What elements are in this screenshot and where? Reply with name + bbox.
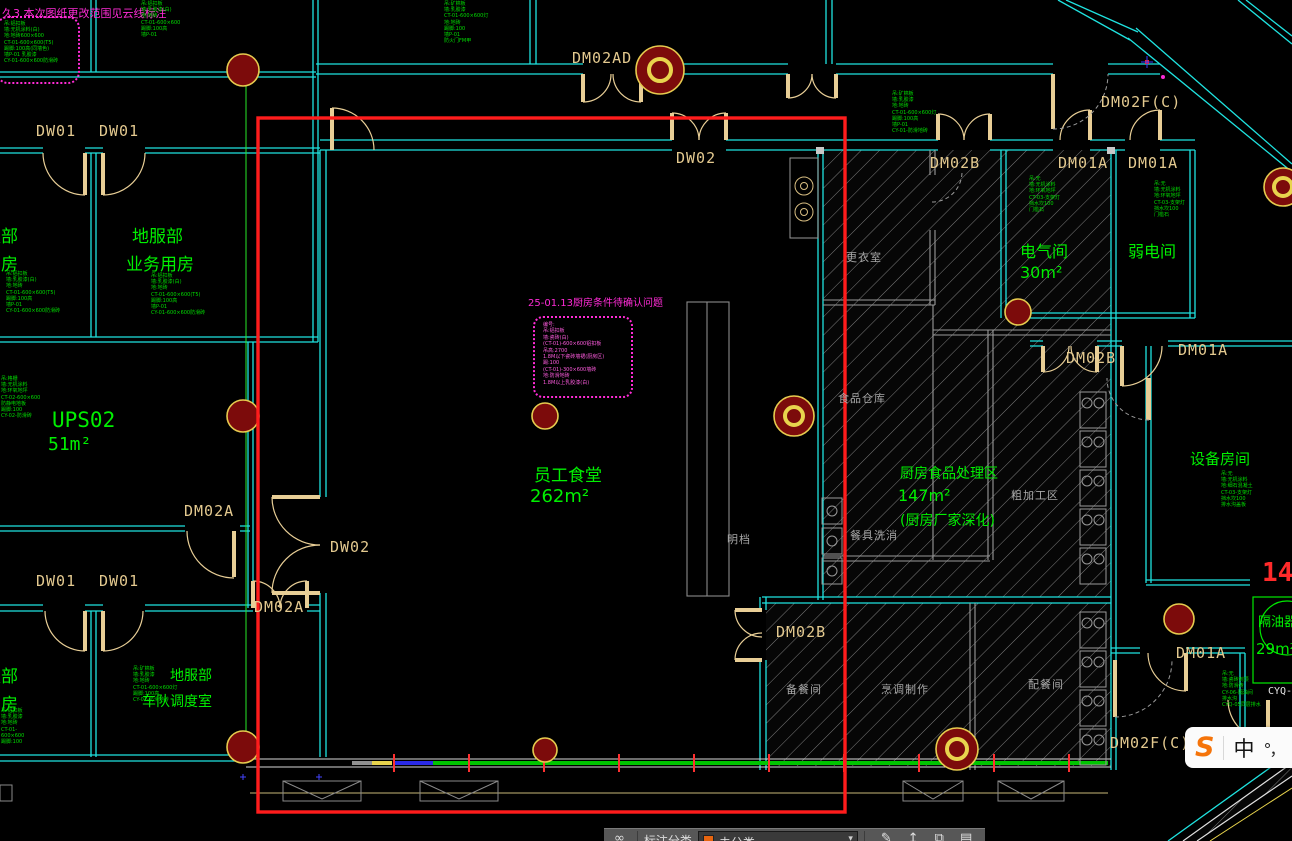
ime-divider (1223, 736, 1224, 760)
annotation-category-label: 标注分类 (644, 829, 692, 841)
toolbar-divider (637, 831, 638, 841)
edit-icon[interactable]: ✎ (871, 829, 898, 841)
ime-language-mode[interactable]: 中 (1233, 733, 1254, 763)
ime-bar[interactable]: S 中 °， (1185, 727, 1292, 768)
category-dropdown-value: 未分类 (719, 834, 755, 841)
category-color-swatch (703, 835, 714, 841)
copy-icon[interactable]: ⧉ (925, 829, 950, 841)
ime-punctuation-toggle[interactable]: °， (1263, 736, 1283, 760)
link-icon[interactable]: ∞ (604, 829, 631, 841)
selection-highlight-rect[interactable] (258, 118, 845, 812)
floorplan-drawing (0, 0, 1292, 841)
save-icon[interactable]: ▤ (950, 829, 978, 841)
grease-trap-symbol (1253, 597, 1292, 683)
annotation-toolbar: ∞ 标注分类 未分类 ▾ ✎ ↥ ⧉ ▤ (604, 828, 985, 841)
revision-cloud-top-left (0, 16, 80, 84)
sogou-logo-icon[interactable]: S (1195, 734, 1214, 761)
upload-icon[interactable]: ↥ (898, 829, 925, 841)
chevron-down-icon: ▾ (848, 834, 853, 841)
toolbar-divider (864, 831, 865, 841)
revision-cloud-center (533, 316, 633, 398)
cad-canvas[interactable]: 服部 用房 地服部 业务用房 UPS02 51m² 员工食堂 262m² 电气间… (0, 0, 1292, 841)
category-dropdown[interactable]: 未分类 ▾ (698, 831, 858, 841)
